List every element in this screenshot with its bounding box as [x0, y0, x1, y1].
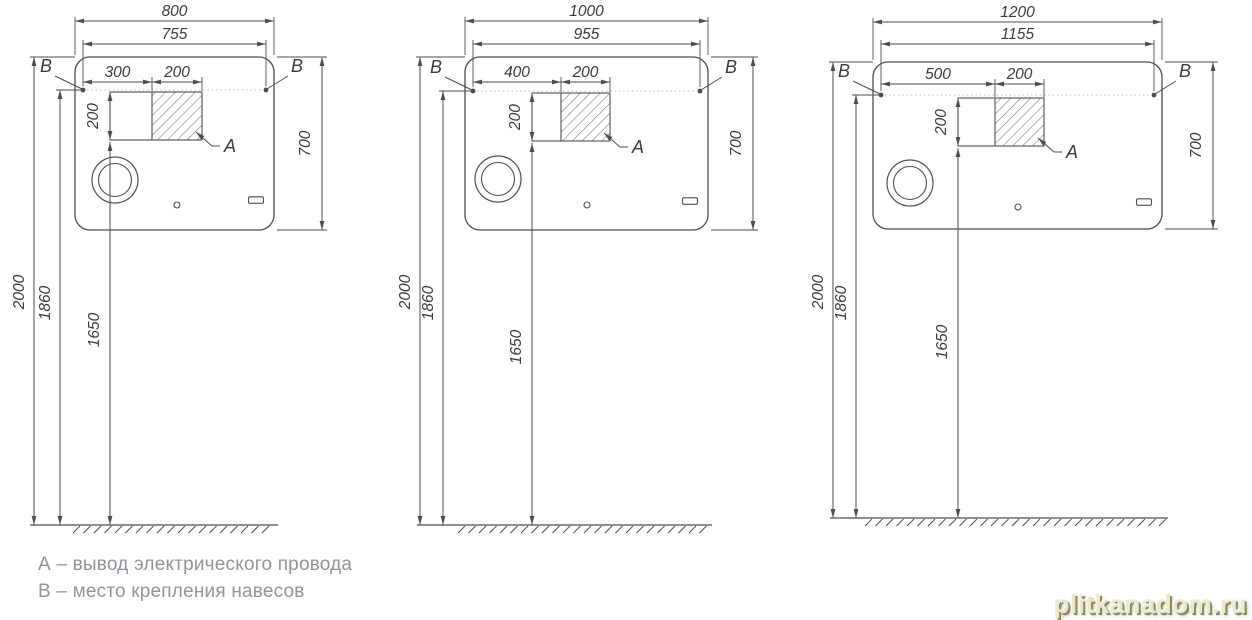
- ground-hatch-tick: [626, 526, 633, 533]
- ground-hatch-tick: [521, 526, 528, 533]
- ground-hatch-tick: [700, 526, 707, 533]
- label-a: A: [1065, 142, 1078, 162]
- ground-hatch-tick: [94, 526, 101, 533]
- label-b-right-leader: [1155, 81, 1176, 94]
- ground-hatch-tick: [616, 526, 623, 533]
- label-b-left-leader: [853, 81, 880, 94]
- dim-mounting-span-label: 755: [162, 26, 188, 43]
- dimension-arrow: [530, 516, 535, 525]
- ground-hatch-tick: [584, 526, 591, 533]
- dimension-arrow: [143, 80, 152, 85]
- dimension-arrow: [699, 19, 708, 24]
- ground-hatch-tick: [532, 526, 539, 533]
- label-b-left-leader: [445, 77, 472, 90]
- dim-outlet-bottom-height-label: 1650: [508, 329, 525, 364]
- label-b-left: B: [838, 61, 850, 81]
- dim-outlet-width-label: 200: [572, 64, 599, 81]
- dimension-arrow: [58, 516, 63, 525]
- ground-hatch-tick: [574, 526, 581, 533]
- outlet-zone-hatch: [152, 92, 202, 140]
- installation-diagram-svg: 800755300200200700200018601650ABB1000955…: [0, 0, 1252, 620]
- dimension-arrow: [465, 19, 474, 24]
- dimension-arrow: [751, 221, 756, 230]
- dim-outlet-height-label: 200: [933, 109, 950, 136]
- ground-hatch-tick: [220, 526, 227, 533]
- dim-mounting-height-label: 1860: [833, 285, 850, 320]
- label-b-left-leader: [55, 76, 82, 89]
- ground-hatch-tick: [1044, 519, 1051, 526]
- dimension-arrow: [75, 19, 84, 24]
- ground-hatch-tick: [1107, 519, 1114, 526]
- ground-hatch-tick: [178, 526, 185, 533]
- dim-outlet-offset-label: 400: [504, 64, 530, 81]
- label-b-left: B: [40, 56, 52, 76]
- dimension-arrow: [1153, 20, 1162, 25]
- ground-hatch-tick: [991, 519, 998, 526]
- ground-hatch-tick: [500, 526, 507, 533]
- ground-hatch-tick: [1128, 519, 1135, 526]
- ground-hatch-tick: [679, 526, 686, 533]
- ground-hatch-tick: [210, 526, 217, 533]
- touch-sensor-dot: [584, 202, 590, 208]
- dim-overall-width-label: 1000: [569, 3, 604, 20]
- dim-overall-width-label: 1200: [1000, 4, 1035, 21]
- label-b-right: B: [725, 57, 737, 77]
- label-b-left: B: [430, 57, 442, 77]
- touch-sensor-dot: [1015, 204, 1021, 210]
- dimension-arrow: [1211, 220, 1216, 229]
- dimension-arrow: [152, 80, 161, 85]
- ground-hatch-tick: [1023, 519, 1030, 526]
- installation-drawing-page: 800755300200200700200018601650ABB1000955…: [0, 0, 1252, 620]
- outlet-zone-hatch: [995, 98, 1044, 146]
- label-b-right: B: [291, 56, 303, 76]
- dimension-arrow: [530, 143, 535, 152]
- dim-outlet-height-label: 200: [85, 103, 102, 130]
- dim-mounting-span-label: 955: [574, 26, 600, 43]
- label-b-right-leader: [267, 76, 288, 89]
- diagram-mirror-800: 800755300200200700200018601650ABB: [11, 3, 327, 533]
- dimension-arrow: [561, 80, 570, 85]
- ground-hatch-tick: [907, 519, 914, 526]
- display-window: [1137, 199, 1152, 206]
- touch-sensor-dot: [174, 202, 180, 208]
- ground-hatch-tick: [262, 526, 269, 533]
- dimension-arrow: [956, 98, 961, 107]
- ground-hatch-tick: [1159, 519, 1166, 526]
- ground-hatch-tick: [865, 519, 872, 526]
- dim-outlet-width-label: 200: [163, 64, 190, 81]
- ground-hatch-tick: [563, 526, 570, 533]
- dimension-arrow: [473, 80, 482, 85]
- label-a: A: [223, 136, 236, 156]
- ground-hatch-tick: [147, 526, 154, 533]
- dimension-arrow: [751, 57, 756, 66]
- dimension-arrow: [32, 516, 37, 525]
- dimension-arrow: [320, 221, 325, 230]
- ground-hatch-tick: [928, 519, 935, 526]
- ground-hatch-tick: [136, 526, 143, 533]
- dimension-arrow: [418, 57, 423, 66]
- dim-outlet-height-label: 200: [507, 104, 524, 131]
- ground-hatch-tick: [595, 526, 602, 533]
- dimension-arrow: [530, 93, 535, 102]
- dimension-arrow: [320, 57, 325, 66]
- dim-overall-top-height-label: 2000: [397, 274, 414, 310]
- ground-hatch-tick: [469, 526, 476, 533]
- ground-hatch-tick: [126, 526, 133, 533]
- legend-item-b: В – место крепления навесов: [38, 578, 352, 605]
- dimension-arrow: [691, 42, 700, 47]
- ground-hatch-tick: [1033, 519, 1040, 526]
- ground-hatch-tick: [981, 519, 988, 526]
- dim-mirror-height-label: 700: [728, 130, 745, 156]
- ground-hatch-tick: [658, 526, 665, 533]
- ground-hatch-tick: [897, 519, 904, 526]
- dimension-arrow: [995, 82, 1004, 87]
- ground-hatch-tick: [115, 526, 122, 533]
- ground-hatch-tick: [252, 526, 259, 533]
- ground-hatch-tick: [1138, 519, 1145, 526]
- dimension-arrow: [257, 42, 266, 47]
- dimension-arrow: [956, 148, 961, 157]
- dimension-arrow: [108, 131, 113, 140]
- ground-hatch-tick: [668, 526, 675, 533]
- ground-hatch-tick: [511, 526, 518, 533]
- dimension-arrow: [265, 19, 274, 24]
- ground-hatch-tick: [1117, 519, 1124, 526]
- dim-mounting-height-label: 1860: [420, 285, 437, 320]
- magnifier-zone-inner-circle: [894, 167, 927, 200]
- dim-mirror-height-label: 700: [1188, 132, 1205, 158]
- ground-hatch-tick: [886, 519, 893, 526]
- mirror-outline: [465, 57, 708, 230]
- dimension-arrow: [986, 82, 995, 87]
- dim-outlet-width-label: 200: [1006, 66, 1033, 83]
- ground-hatch-tick: [105, 526, 112, 533]
- outlet-zone-hatch: [561, 93, 610, 141]
- dim-mirror-height-label: 700: [297, 130, 314, 156]
- dimension-arrow: [1145, 42, 1154, 47]
- ground-hatch-tick: [490, 526, 497, 533]
- ground-hatch-tick: [949, 519, 956, 526]
- ground-hatch-tick: [157, 526, 164, 533]
- ground-hatch-tick: [918, 519, 925, 526]
- dimension-arrow: [881, 42, 890, 47]
- ground-hatch-tick: [231, 526, 238, 533]
- dimension-arrow: [1211, 62, 1216, 71]
- dim-outlet-offset-label: 500: [925, 66, 951, 83]
- magnifier-zone-inner-circle: [482, 163, 515, 196]
- label-a: A: [631, 137, 644, 157]
- dimension-arrow: [831, 62, 836, 71]
- ground-hatch-tick: [73, 526, 80, 533]
- dimension-arrow: [193, 80, 202, 85]
- dimension-arrow: [441, 91, 446, 100]
- legend-item-a: А – вывод электрического провода: [38, 551, 352, 578]
- watermark: plitkanadom.ru: [1054, 589, 1247, 620]
- ground-hatch-tick: [199, 526, 206, 533]
- ground-hatch-tick: [970, 519, 977, 526]
- dim-overall-width-label: 800: [162, 3, 188, 20]
- label-b-right: B: [1179, 61, 1191, 81]
- dimension-arrow: [32, 57, 37, 66]
- ground-hatch-tick: [1012, 519, 1019, 526]
- ground-hatch-tick: [939, 519, 946, 526]
- ground-hatch-tick: [168, 526, 175, 533]
- display-window: [249, 197, 264, 204]
- dimension-arrow: [473, 42, 482, 47]
- dim-overall-top-height-label: 2000: [11, 274, 28, 310]
- label-b-right-leader: [701, 77, 722, 90]
- ground-hatch-tick: [637, 526, 644, 533]
- dimension-arrow: [552, 80, 561, 85]
- display-window: [683, 198, 698, 205]
- dimension-arrow: [881, 82, 890, 87]
- dimension-arrow: [108, 516, 113, 525]
- magnifier-zone-inner-circle: [99, 164, 132, 197]
- dimension-arrow: [601, 80, 610, 85]
- dimension-arrow: [418, 516, 423, 525]
- dimension-arrow: [831, 509, 836, 518]
- dimension-arrow: [83, 42, 92, 47]
- dimension-arrow: [108, 142, 113, 151]
- ground-hatch-tick: [647, 526, 654, 533]
- dimension-arrow: [854, 509, 859, 518]
- dimension-arrow: [956, 137, 961, 146]
- legend: А – вывод электрического провода В – мес…: [38, 551, 352, 605]
- dimension-arrow: [956, 509, 961, 518]
- ground-hatch-tick: [241, 526, 248, 533]
- ground-hatch-tick: [1086, 519, 1093, 526]
- ground-hatch-tick: [689, 526, 696, 533]
- ground-hatch-tick: [1054, 519, 1061, 526]
- ground-hatch-tick: [1096, 519, 1103, 526]
- dim-outlet-offset-label: 300: [105, 64, 131, 81]
- ground-hatch-tick: [542, 526, 549, 533]
- ground-hatch-tick: [605, 526, 612, 533]
- dimension-arrow: [1035, 82, 1044, 87]
- dimension-arrow: [873, 20, 882, 25]
- ground-hatch-tick: [479, 526, 486, 533]
- ground-hatch-tick: [1149, 519, 1156, 526]
- ground-hatch-tick: [84, 526, 91, 533]
- diagram-mirror-1200: 12001155500200200700200018601650ABB: [810, 4, 1218, 526]
- dim-mounting-span-label: 1155: [1001, 26, 1035, 43]
- dimension-arrow: [854, 95, 859, 104]
- ground-hatch-tick: [1075, 519, 1082, 526]
- dimension-arrow: [83, 80, 92, 85]
- ground-hatch-tick: [876, 519, 883, 526]
- dimension-arrow: [530, 132, 535, 141]
- dim-mounting-height-label: 1860: [37, 285, 54, 320]
- dimension-arrow: [58, 90, 63, 99]
- ground-hatch-tick: [1065, 519, 1072, 526]
- ground-hatch-tick: [189, 526, 196, 533]
- dim-outlet-bottom-height-label: 1650: [934, 324, 951, 359]
- diagram-mirror-1000: 1000955400200200700200018601650ABB: [397, 3, 758, 533]
- dimension-arrow: [108, 92, 113, 101]
- ground-hatch-tick: [553, 526, 560, 533]
- ground-hatch-tick: [960, 519, 967, 526]
- ground-hatch-tick: [458, 526, 465, 533]
- dimension-arrow: [441, 516, 446, 525]
- dim-outlet-bottom-height-label: 1650: [86, 312, 103, 347]
- dim-overall-top-height-label: 2000: [810, 274, 827, 310]
- ground-hatch-tick: [1002, 519, 1009, 526]
